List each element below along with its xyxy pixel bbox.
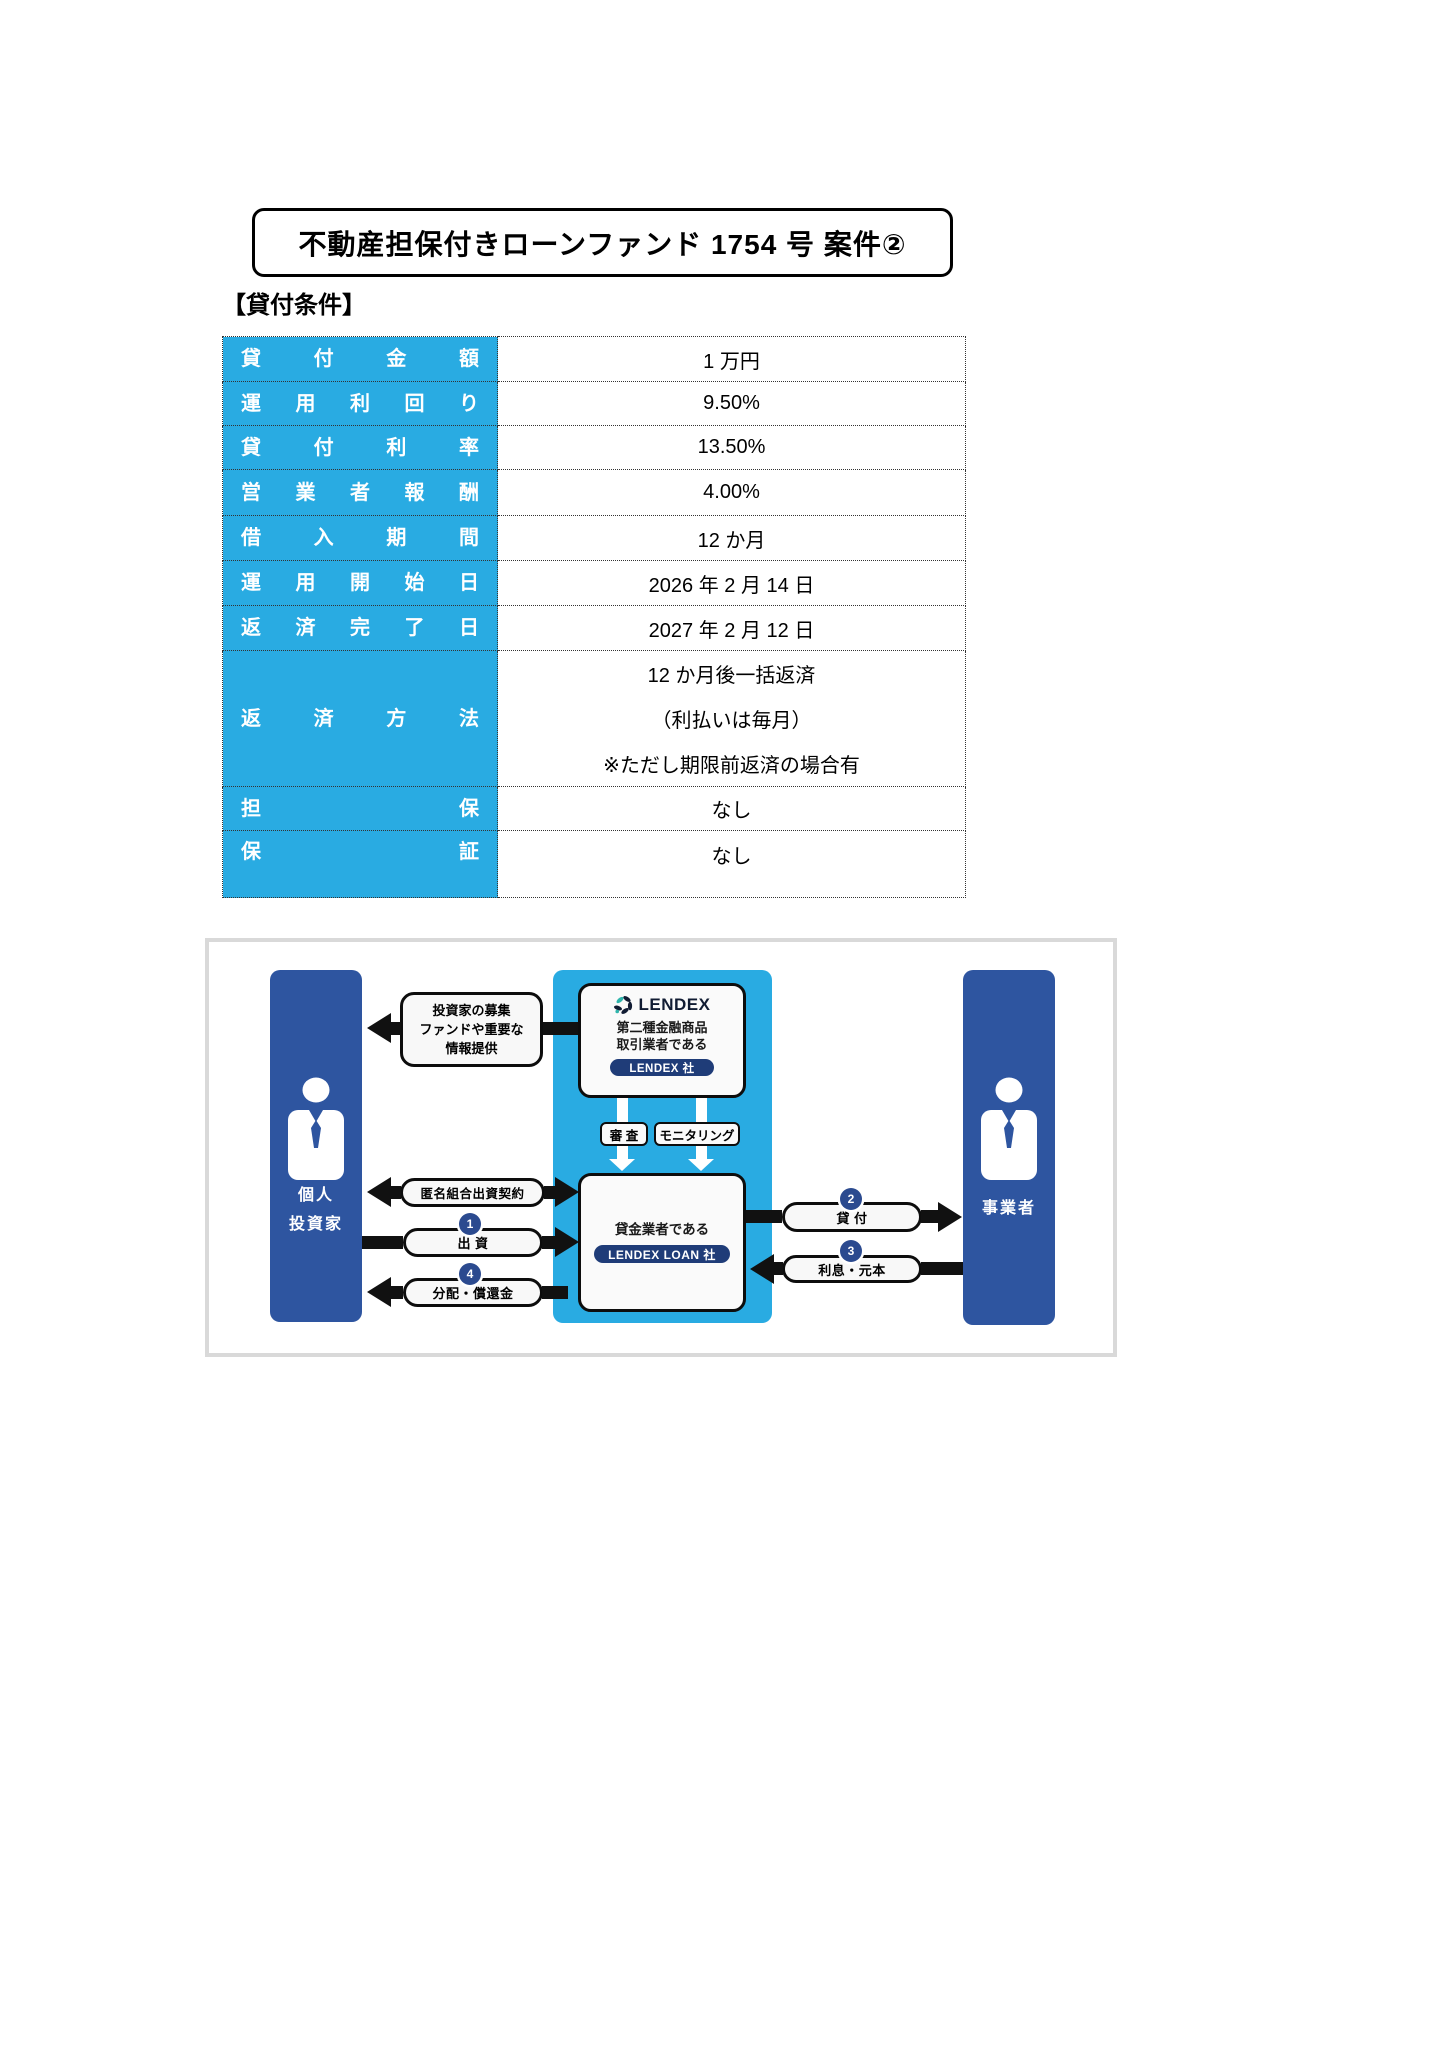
table-row: 貸付利率13.50% xyxy=(223,426,966,470)
flow-number-3: 3 xyxy=(840,1240,862,1262)
table-row: 保証なし xyxy=(223,831,966,898)
investor-person-icon xyxy=(284,1074,348,1186)
interest-bar-right xyxy=(921,1262,963,1275)
row-label: 貸付利率 xyxy=(223,438,497,458)
row-label-cell: 返済方法 xyxy=(223,651,498,787)
lending-bar-right xyxy=(921,1210,939,1223)
white-arrowhead-monitoring-icon xyxy=(688,1159,714,1171)
loan-conditions-grid: 貸付金額1 万円運用利回り9.50%貸付利率13.50%営業者報酬4.00%借入… xyxy=(222,336,966,898)
business-label: 事業者 xyxy=(963,1194,1055,1223)
row-value-line: （利払いは毎月） xyxy=(498,696,965,741)
row-value-line: ※ただし期限前返済の場合有 xyxy=(498,741,965,786)
document-page: { "page": { "title_box": "不動産担保付きローンファンド… xyxy=(0,0,1449,2048)
info-offer-box: 投資家の募集 ファンドや重要な 情報提供 xyxy=(400,992,543,1067)
row-value-line: 12 か月後一括返済 xyxy=(498,651,965,696)
lendex-company-badge: LENDEX 社 xyxy=(610,1059,714,1076)
loan-desc: 貸金業者である xyxy=(615,1222,709,1239)
row-value-cell: 1 万円 xyxy=(498,337,966,382)
flow-number-1: 1 xyxy=(459,1213,481,1235)
row-label-cell: 借入期間 xyxy=(223,516,498,561)
table-row: 借入期間12 か月 xyxy=(223,516,966,561)
row-label-cell: 返済完了日 xyxy=(223,606,498,651)
white-bar-monitoring-bottom xyxy=(696,1146,707,1159)
distribution-bar-left xyxy=(389,1286,403,1299)
flow-anonymous-partnership: 匿名組合出資契約 xyxy=(400,1178,545,1207)
lendex-logo: LENDEX xyxy=(614,995,711,1015)
white-arrowhead-check-icon xyxy=(609,1159,635,1171)
row-value-cell: 2027 年 2 月 12 日 xyxy=(498,606,966,651)
row-label: 借入期間 xyxy=(223,528,497,548)
flow-number-4: 4 xyxy=(459,1263,481,1285)
lendex-loan-badge: LENDEX LOAN 社 xyxy=(594,1245,730,1263)
row-value-cell: 12 か月後一括返済（利払いは毎月）※ただし期限前返済の場合有 xyxy=(498,651,966,787)
row-label: 返済方法 xyxy=(223,709,497,729)
flow-number-2: 2 xyxy=(840,1188,862,1210)
monitoring-tag: モニタリング xyxy=(654,1122,740,1146)
row-label-cell: 営業者報酬 xyxy=(223,470,498,516)
investor-label: 個人 投資家 xyxy=(270,1181,362,1239)
lending-bar-left xyxy=(746,1210,782,1223)
white-bar-check-top xyxy=(617,1098,628,1122)
table-row: 運用開始日2026 年 2 月 14 日 xyxy=(223,561,966,606)
row-value-cell: 12 か月 xyxy=(498,516,966,561)
check-tag: 審 査 xyxy=(600,1122,648,1146)
row-label-cell: 保証 xyxy=(223,831,498,898)
table-row: 運用利回り9.50% xyxy=(223,382,966,426)
row-label-cell: 貸付金額 xyxy=(223,337,498,382)
row-label: 返済完了日 xyxy=(223,618,497,638)
scheme-diagram-frame: 個人 投資家 事業者 LENDEX 第 xyxy=(205,938,1117,1357)
anonymous-bar-left xyxy=(389,1186,401,1199)
lendex-loan-card: 貸金業者である LENDEX LOAN 社 xyxy=(578,1173,746,1312)
distribution-arrowhead-icon xyxy=(367,1277,391,1307)
lendex-logo-text: LENDEX xyxy=(639,995,711,1015)
row-label: 運用利回り xyxy=(223,394,497,414)
table-row: 営業者報酬4.00% xyxy=(223,470,966,516)
lending-arrowhead-icon xyxy=(938,1202,962,1232)
loan-table-body: 貸付金額1 万円運用利回り9.50%貸付利率13.50%営業者報酬4.00%借入… xyxy=(223,337,966,898)
lendex-logo-icon xyxy=(614,995,634,1015)
row-value-cell: 4.00% xyxy=(498,470,966,516)
info-flow-arrowhead-icon xyxy=(367,1013,391,1043)
row-value-cell: 2026 年 2 月 14 日 xyxy=(498,561,966,606)
info-flow-bar-left xyxy=(391,1022,401,1035)
table-row: 返済方法12 か月後一括返済（利払いは毎月）※ただし期限前返済の場合有 xyxy=(223,651,966,787)
table-row: 担保なし xyxy=(223,787,966,831)
row-value-cell: なし xyxy=(498,787,966,831)
section-heading: 【貸付条件】 xyxy=(222,285,366,320)
interest-arrowhead-icon xyxy=(750,1254,774,1284)
page-title: 不動産担保付きローンファンド 1754 号 案件② xyxy=(298,223,906,263)
lendex-card: LENDEX 第二種金融商品 取引業者である LENDEX 社 xyxy=(578,983,746,1098)
investment-arrowhead-icon xyxy=(555,1227,579,1257)
lendex-desc: 第二種金融商品 取引業者である xyxy=(616,1020,707,1053)
row-label: 運用開始日 xyxy=(223,573,497,593)
interest-bar-left xyxy=(772,1262,783,1275)
row-label: 担保 xyxy=(223,799,497,819)
row-value-cell: なし xyxy=(498,831,966,898)
anonymous-arrowhead-left-icon xyxy=(367,1177,391,1207)
distribution-bar-right xyxy=(542,1286,568,1299)
row-label-cell: 担保 xyxy=(223,787,498,831)
row-label-cell: 運用利回り xyxy=(223,382,498,426)
business-person-icon xyxy=(977,1074,1041,1186)
table-row: 貸付金額1 万円 xyxy=(223,337,966,382)
anonymous-arrowhead-right-icon xyxy=(555,1177,579,1207)
row-label-cell: 運用開始日 xyxy=(223,561,498,606)
title-box: 不動産担保付きローンファンド 1754 号 案件② xyxy=(252,208,953,277)
table-row: 返済完了日2027 年 2 月 12 日 xyxy=(223,606,966,651)
row-label: 営業者報酬 xyxy=(223,483,497,503)
row-label-cell: 貸付利率 xyxy=(223,426,498,470)
row-label: 保証 xyxy=(223,831,497,862)
white-bar-monitoring-top xyxy=(696,1098,707,1122)
white-bar-check-bottom xyxy=(617,1146,628,1159)
investment-bar-left xyxy=(362,1236,403,1249)
row-value-cell: 13.50% xyxy=(498,426,966,470)
row-value-cell: 9.50% xyxy=(498,382,966,426)
info-flow-bar-right xyxy=(543,1022,578,1035)
row-label: 貸付金額 xyxy=(223,349,497,369)
loan-conditions-table: 貸付金額1 万円運用利回り9.50%貸付利率13.50%営業者報酬4.00%借入… xyxy=(222,336,966,898)
